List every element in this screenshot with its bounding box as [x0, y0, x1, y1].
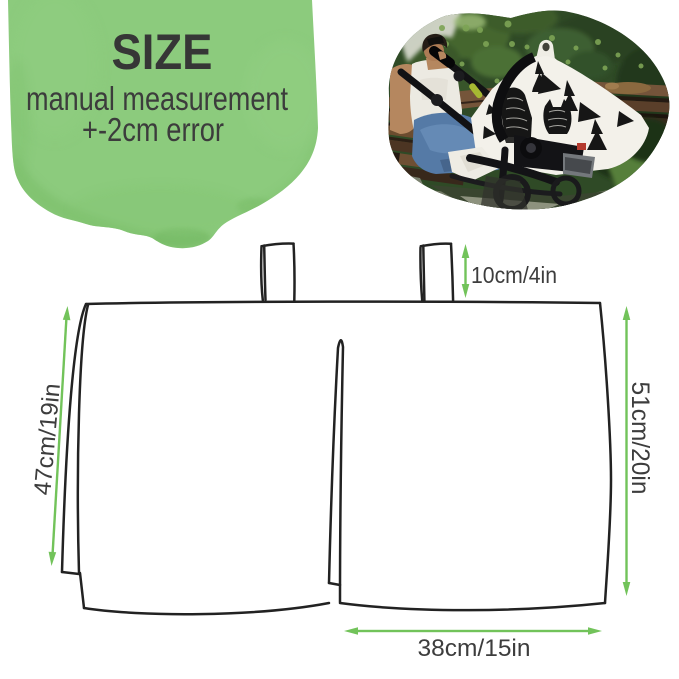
svg-text:51cm/20in: 51cm/20in [626, 382, 654, 495]
svg-text:38cm/15in: 38cm/15in [418, 635, 531, 662]
svg-text:+-2cm error: +-2cm error [82, 111, 224, 148]
svg-text:SIZE: SIZE [112, 24, 213, 80]
svg-text:10cm/4in: 10cm/4in [471, 262, 557, 288]
